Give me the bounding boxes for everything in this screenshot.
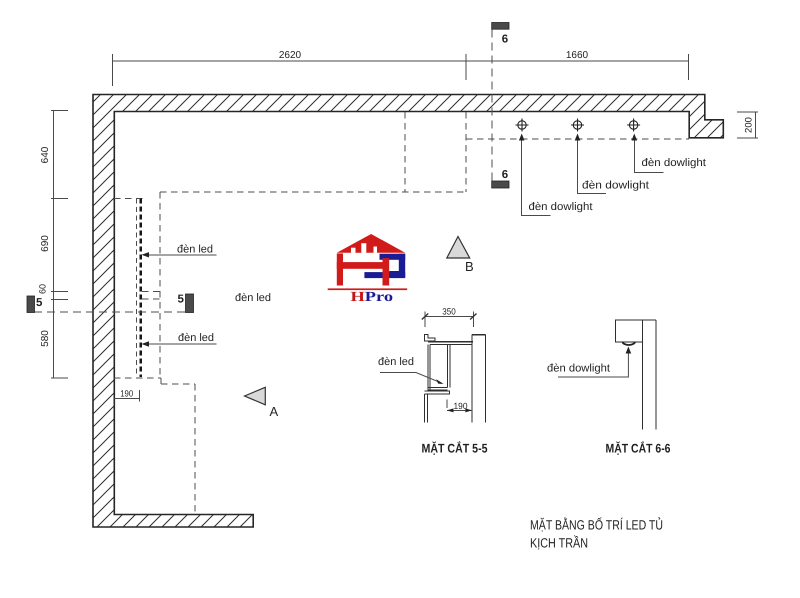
svg-text:đèn dowlight: đèn dowlight	[529, 201, 593, 213]
svg-text:6: 6	[502, 34, 508, 46]
svg-text:5: 5	[178, 294, 185, 306]
svg-text:HPro: HPro	[351, 290, 394, 305]
svg-text:1660: 1660	[566, 50, 589, 61]
svg-text:190: 190	[120, 389, 133, 399]
svg-text:đèn led: đèn led	[378, 356, 414, 368]
svg-text:MẶT CẮT 6-6: MẶT CẮT 6-6	[606, 441, 671, 456]
svg-text:MẶT CẮT 5-5: MẶT CẮT 5-5	[422, 441, 488, 456]
svg-text:2620: 2620	[279, 50, 302, 61]
svg-text:A: A	[270, 404, 279, 419]
svg-text:đèn dowlight: đèn dowlight	[582, 179, 649, 191]
svg-text:đèn led: đèn led	[177, 244, 213, 256]
svg-text:đèn led: đèn led	[235, 292, 271, 304]
svg-text:6: 6	[502, 169, 508, 181]
svg-text:60: 60	[38, 284, 48, 294]
svg-text:350: 350	[442, 307, 456, 317]
svg-text:đèn dowlight: đèn dowlight	[547, 363, 610, 375]
svg-text:B: B	[465, 259, 474, 274]
svg-text:đèn dowlight: đèn dowlight	[642, 157, 707, 169]
svg-text:640: 640	[40, 146, 51, 163]
svg-text:690: 690	[40, 235, 51, 252]
svg-text:đèn led: đèn led	[178, 332, 214, 344]
svg-text:MẶT BẰNG BỐ TRÍ LED TỦ: MẶT BẰNG BỐ TRÍ LED TỦ	[530, 517, 663, 533]
svg-text:200: 200	[744, 117, 755, 133]
svg-text:190: 190	[454, 401, 468, 411]
svg-text:KỊCH TRẦN: KỊCH TRẦN	[530, 534, 588, 550]
svg-text:5: 5	[36, 297, 43, 309]
svg-text:580: 580	[40, 330, 51, 347]
